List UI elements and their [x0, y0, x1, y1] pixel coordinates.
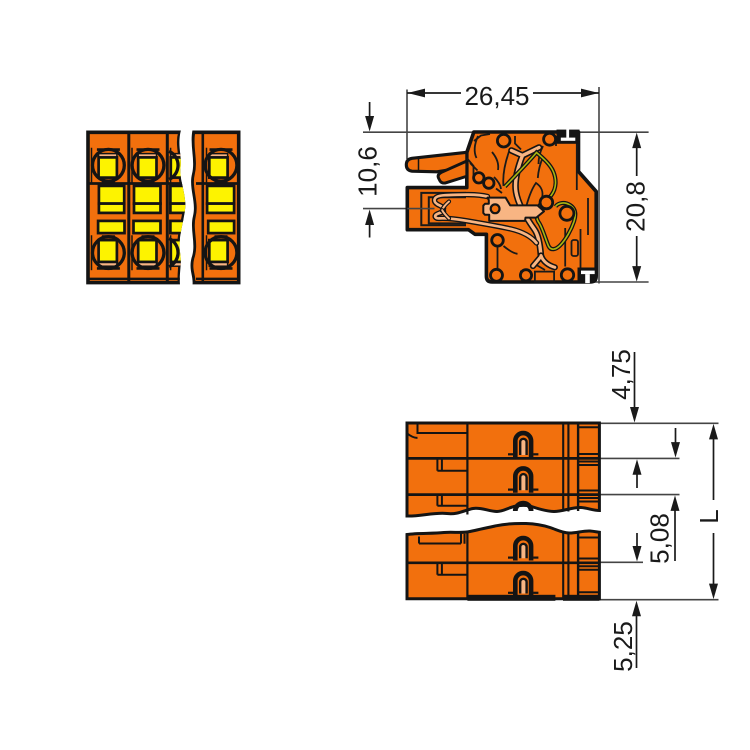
svg-text:10,6: 10,6 — [353, 146, 383, 197]
svg-text:4,75: 4,75 — [606, 349, 636, 400]
svg-text:20,8: 20,8 — [621, 181, 651, 232]
svg-text:26,45: 26,45 — [464, 81, 529, 111]
svg-text:5,25: 5,25 — [608, 621, 638, 672]
svg-text:5,08: 5,08 — [645, 513, 675, 564]
svg-text:L: L — [694, 509, 724, 523]
